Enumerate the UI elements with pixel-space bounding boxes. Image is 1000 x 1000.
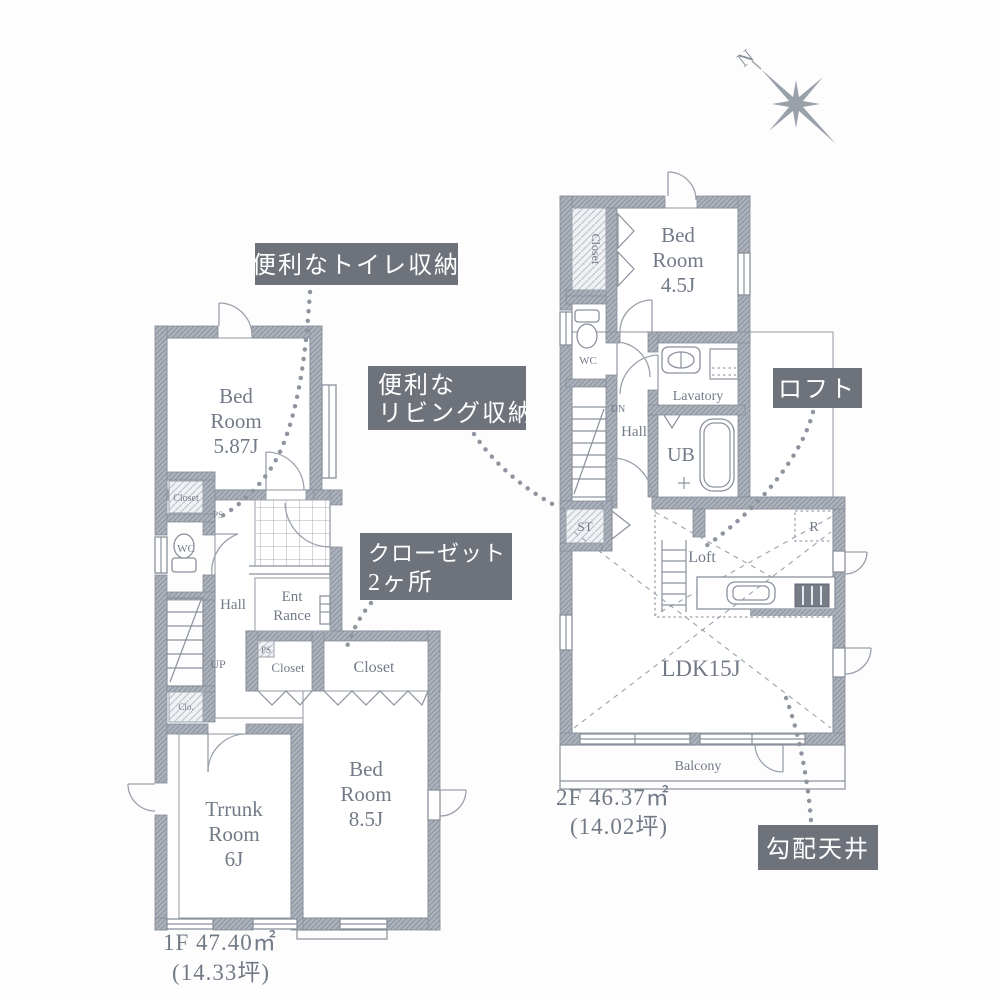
label-dn: DN [611,404,625,415]
svg-text:2ヶ所: 2ヶ所 [368,569,434,596]
svg-text:Room: Room [210,409,261,433]
area-label-2f: 2F 46.37㎡ [556,785,670,810]
callout-toilet-storage: 便利なトイレ収納 [252,243,460,285]
svg-text:(14.02坪): (14.02坪) [570,814,668,839]
room-label-wc-1f: WC [177,543,195,555]
floor-plan-page: N [0,0,1000,1000]
room-label-trunk: Trrunk [205,797,263,821]
compass-icon: N [733,45,836,144]
svg-text:Room: Room [208,822,259,846]
callout-loft: ロフト [773,368,862,408]
svg-text:ロフト: ロフト [778,377,856,403]
callout-toilet-storage-text: 便利なトイレ収納 [252,252,460,279]
room-label-wc-2f: WC [579,355,597,367]
room-label-ub: UB [667,444,695,466]
room-label-loft: Loft [688,549,716,566]
room-label-lavatory: Lavatory [673,389,724,404]
room-label-closet-b: Closet [354,659,395,676]
room-label-hall-1f: Hall [220,597,246,613]
svg-text:勾配天井: 勾配天井 [766,836,870,863]
compass-n-label: N [733,45,758,71]
label-fridge: R [809,520,819,535]
room-label-st: ST [577,519,592,534]
room-label-bedroom1: Bed [219,384,253,408]
callout-living-storage: 便利な リビング収納 [368,366,534,430]
callout-two-closets: クローゼット 2ヶ所 [360,533,512,600]
label-ps-mid: PS [261,645,271,655]
room-label-closet-2f: Closet [589,234,603,265]
svg-text:Rance: Rance [273,608,311,624]
svg-text:Room: Room [652,248,703,272]
room-label-entrance: Ent [282,589,304,605]
svg-text:4.5J: 4.5J [661,273,695,297]
room-label-closet-top: Closet [173,493,199,504]
svg-text:クローゼット: クローゼット [368,541,506,566]
room-label-bedroom2: Bed [349,757,383,781]
floor-plan-drawing: N [0,0,1000,1000]
svg-text:便利な: 便利な [378,372,456,399]
label-up: UP [210,657,226,671]
callout-sloped-ceiling: 勾配天井 [758,825,878,870]
svg-text:6J: 6J [225,847,244,871]
svg-text:(14.33坪): (14.33坪) [172,960,270,985]
area-label-1f: 1F 47.40㎡ [163,930,277,955]
room-label-closet-a: Closet [271,660,305,675]
floorplan-2f: Closet Bed Room 4.5J WC DN Hall Lavatory… [556,172,871,839]
svg-text:5.87J: 5.87J [214,434,259,458]
svg-text:リビング収納: リビング収納 [378,400,534,427]
room-label-bedroom-2f: Bed [661,223,695,247]
room-label-hall-2f: Hall [621,424,647,440]
svg-text:8.5J: 8.5J [349,807,383,831]
room-label-ldk: LDK15J [661,656,740,681]
room-label-closet-small: Clo. [178,702,193,712]
room-label-balcony: Balcony [675,759,722,774]
svg-text:Room: Room [340,782,391,806]
stairs-1f [167,598,203,686]
